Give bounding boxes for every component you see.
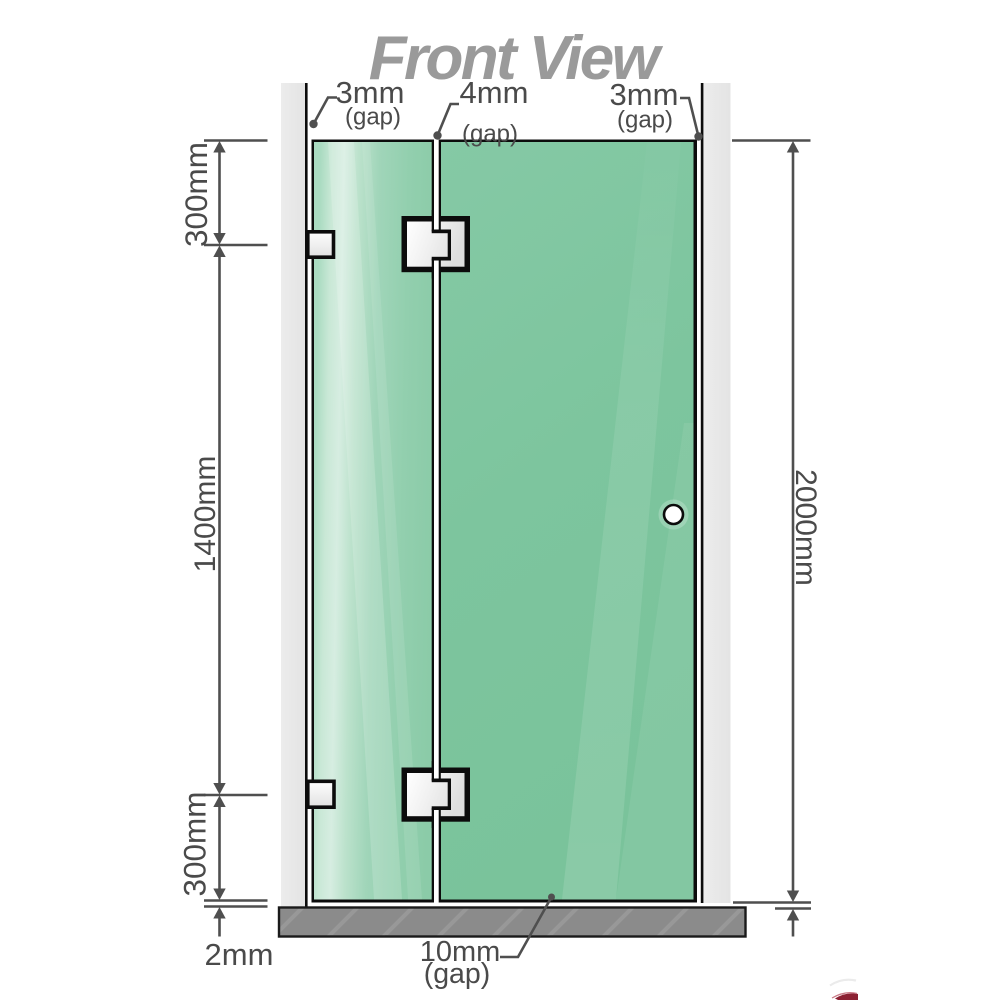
svg-text:300mm: 300mm	[178, 142, 214, 247]
svg-text:2mm: 2mm	[205, 937, 274, 972]
svg-text:4mm: 4mm	[460, 75, 529, 110]
svg-text:1400mm: 1400mm	[189, 456, 222, 573]
svg-text:(gap): (gap)	[617, 107, 673, 134]
svg-text:300mm: 300mm	[176, 791, 212, 896]
svg-text:2000mm: 2000mm	[789, 469, 822, 586]
svg-text:(gap): (gap)	[462, 121, 518, 148]
svg-text:(gap): (gap)	[345, 104, 401, 131]
svg-text:(gap): (gap)	[424, 958, 491, 990]
